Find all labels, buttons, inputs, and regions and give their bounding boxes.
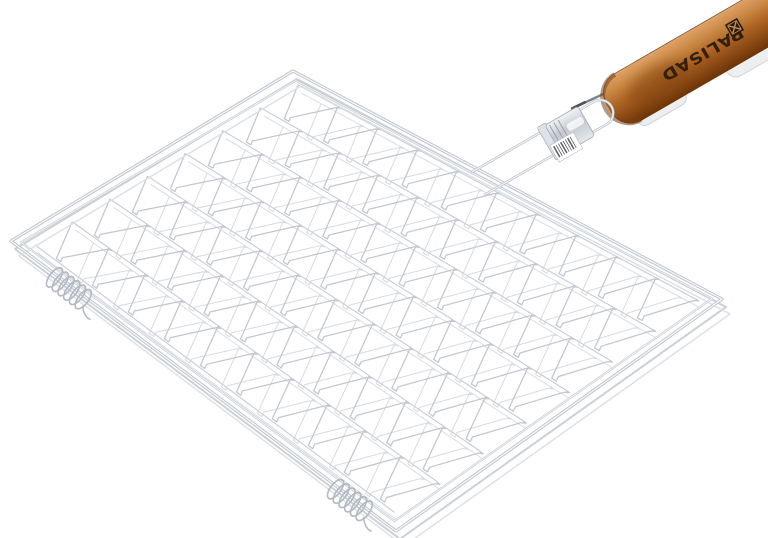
- grill-grate-illustration: PALISAD: [0, 0, 768, 538]
- product-photo-grill-grate: PALISAD: [0, 0, 768, 538]
